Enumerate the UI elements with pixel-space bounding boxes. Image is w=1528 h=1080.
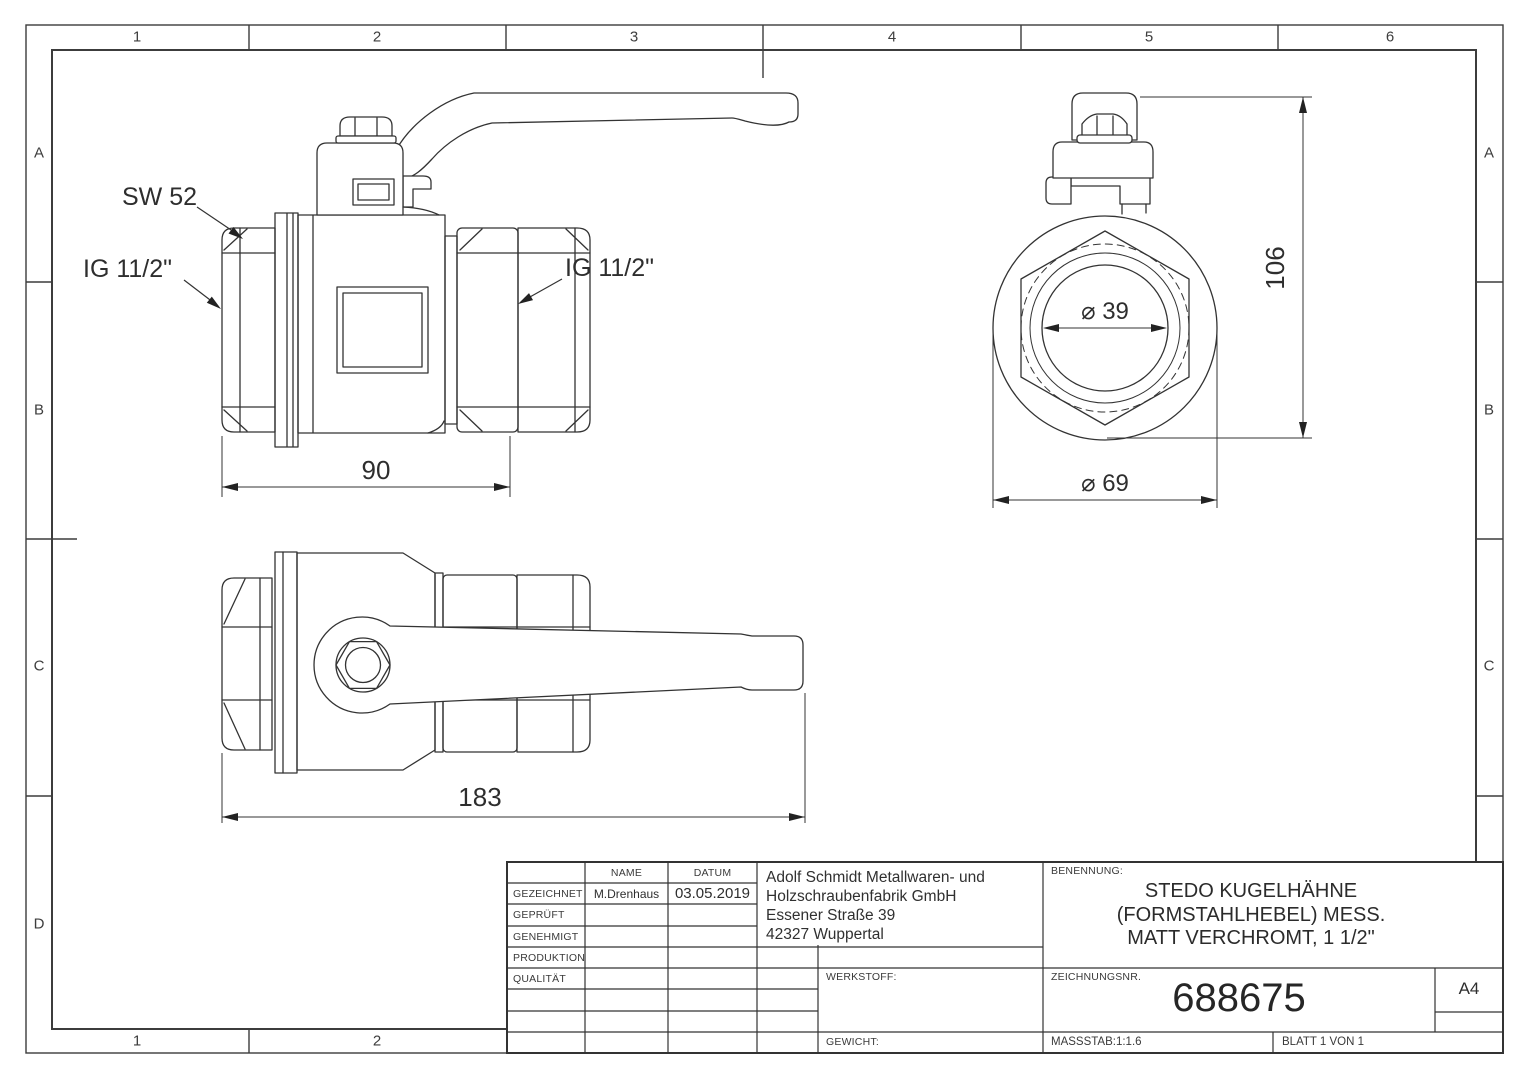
dim-69-text: ⌀ 69 bbox=[1081, 470, 1129, 497]
company-line-3: Essener Straße 39 bbox=[766, 906, 985, 925]
drawing-number: 688675 bbox=[1043, 976, 1435, 1021]
company-address: Adolf Schmidt Metallwaren- und Holzschra… bbox=[766, 868, 985, 944]
drawing-sheet: SW 52 IG 11/2" IG 11/2" 90 ⌀ 39 106 bbox=[0, 0, 1528, 1080]
dim-183 bbox=[222, 693, 805, 823]
front-view-labels bbox=[184, 207, 562, 309]
tb-werkstoff-label: WERKSTOFF: bbox=[826, 971, 897, 983]
tb-gezeichnet-name: M.Drenhaus bbox=[585, 887, 668, 901]
dim-106-text: 106 bbox=[1260, 246, 1290, 289]
front-view bbox=[222, 93, 798, 447]
label-ig-left: IG 11/2" bbox=[83, 255, 172, 283]
grid-row-a-left: A bbox=[34, 145, 44, 162]
tb-blatt: BLATT 1 VON 1 bbox=[1282, 1036, 1364, 1048]
tb-header-datum: DATUM bbox=[668, 867, 757, 879]
dim-183-text: 183 bbox=[458, 782, 501, 812]
grid-col-3-top: 3 bbox=[630, 29, 638, 46]
end-view bbox=[993, 93, 1217, 440]
tb-row-produktion: PRODUKTION bbox=[513, 952, 585, 964]
tb-row-qualitaet: QUALITÄT bbox=[513, 973, 566, 985]
dim-39-text: ⌀ 39 bbox=[1081, 298, 1129, 325]
tb-gewicht-label: GEWICHT: bbox=[826, 1036, 879, 1048]
grid-row-a-right: A bbox=[1484, 145, 1494, 162]
tb-row-geprueft: GEPRÜFT bbox=[513, 909, 565, 921]
grid-col-2-top: 2 bbox=[373, 29, 381, 46]
company-line-1: Adolf Schmidt Metallwaren- und bbox=[766, 868, 985, 887]
grid-col-4-top: 4 bbox=[888, 29, 896, 46]
company-line-2: Holzschraubenfabrik GmbH bbox=[766, 887, 985, 906]
grid-row-c-right: C bbox=[1484, 658, 1495, 675]
label-ig-right: IG 11/2" bbox=[565, 254, 654, 282]
tb-row-genehmigt: GENEHMIGT bbox=[513, 931, 578, 943]
part-title-line-2: (FORMSTAHLHEBEL) MESS. bbox=[1043, 904, 1459, 928]
grid-row-b-right: B bbox=[1484, 402, 1494, 419]
grid-col-2-bottom: 2 bbox=[373, 1033, 381, 1050]
dim-90-text: 90 bbox=[362, 455, 391, 485]
part-title-line-1: STEDO KUGELHÄHNE bbox=[1043, 880, 1459, 904]
label-sw52: SW 52 bbox=[122, 183, 197, 211]
part-title: STEDO KUGELHÄHNE (FORMSTAHLHEBEL) MESS. … bbox=[1043, 880, 1459, 951]
part-title-line-3: MATT VERCHROMT, 1 1/2" bbox=[1043, 927, 1459, 951]
grid-row-c-left: C bbox=[34, 658, 45, 675]
tb-massstab: MASSSTAB:1:1.6 bbox=[1051, 1036, 1142, 1048]
tb-row-gezeichnet: GEZEICHNET bbox=[513, 888, 583, 900]
grid-col-5-top: 5 bbox=[1145, 29, 1153, 46]
tb-benennung-label: BENENNUNG: bbox=[1051, 865, 1123, 877]
grid-col-1-bottom: 1 bbox=[133, 1033, 141, 1050]
grid-row-b-left: B bbox=[34, 402, 44, 419]
grid-col-6-top: 6 bbox=[1386, 29, 1394, 46]
tb-gezeichnet-date: 03.05.2019 bbox=[668, 885, 757, 902]
tb-header-name: NAME bbox=[585, 867, 668, 879]
grid-col-1-top: 1 bbox=[133, 29, 141, 46]
company-line-4: 42327 Wuppertal bbox=[766, 925, 985, 944]
sheet-format: A4 bbox=[1435, 979, 1503, 999]
grid-row-d-left: D bbox=[34, 916, 45, 933]
top-view bbox=[222, 552, 803, 773]
